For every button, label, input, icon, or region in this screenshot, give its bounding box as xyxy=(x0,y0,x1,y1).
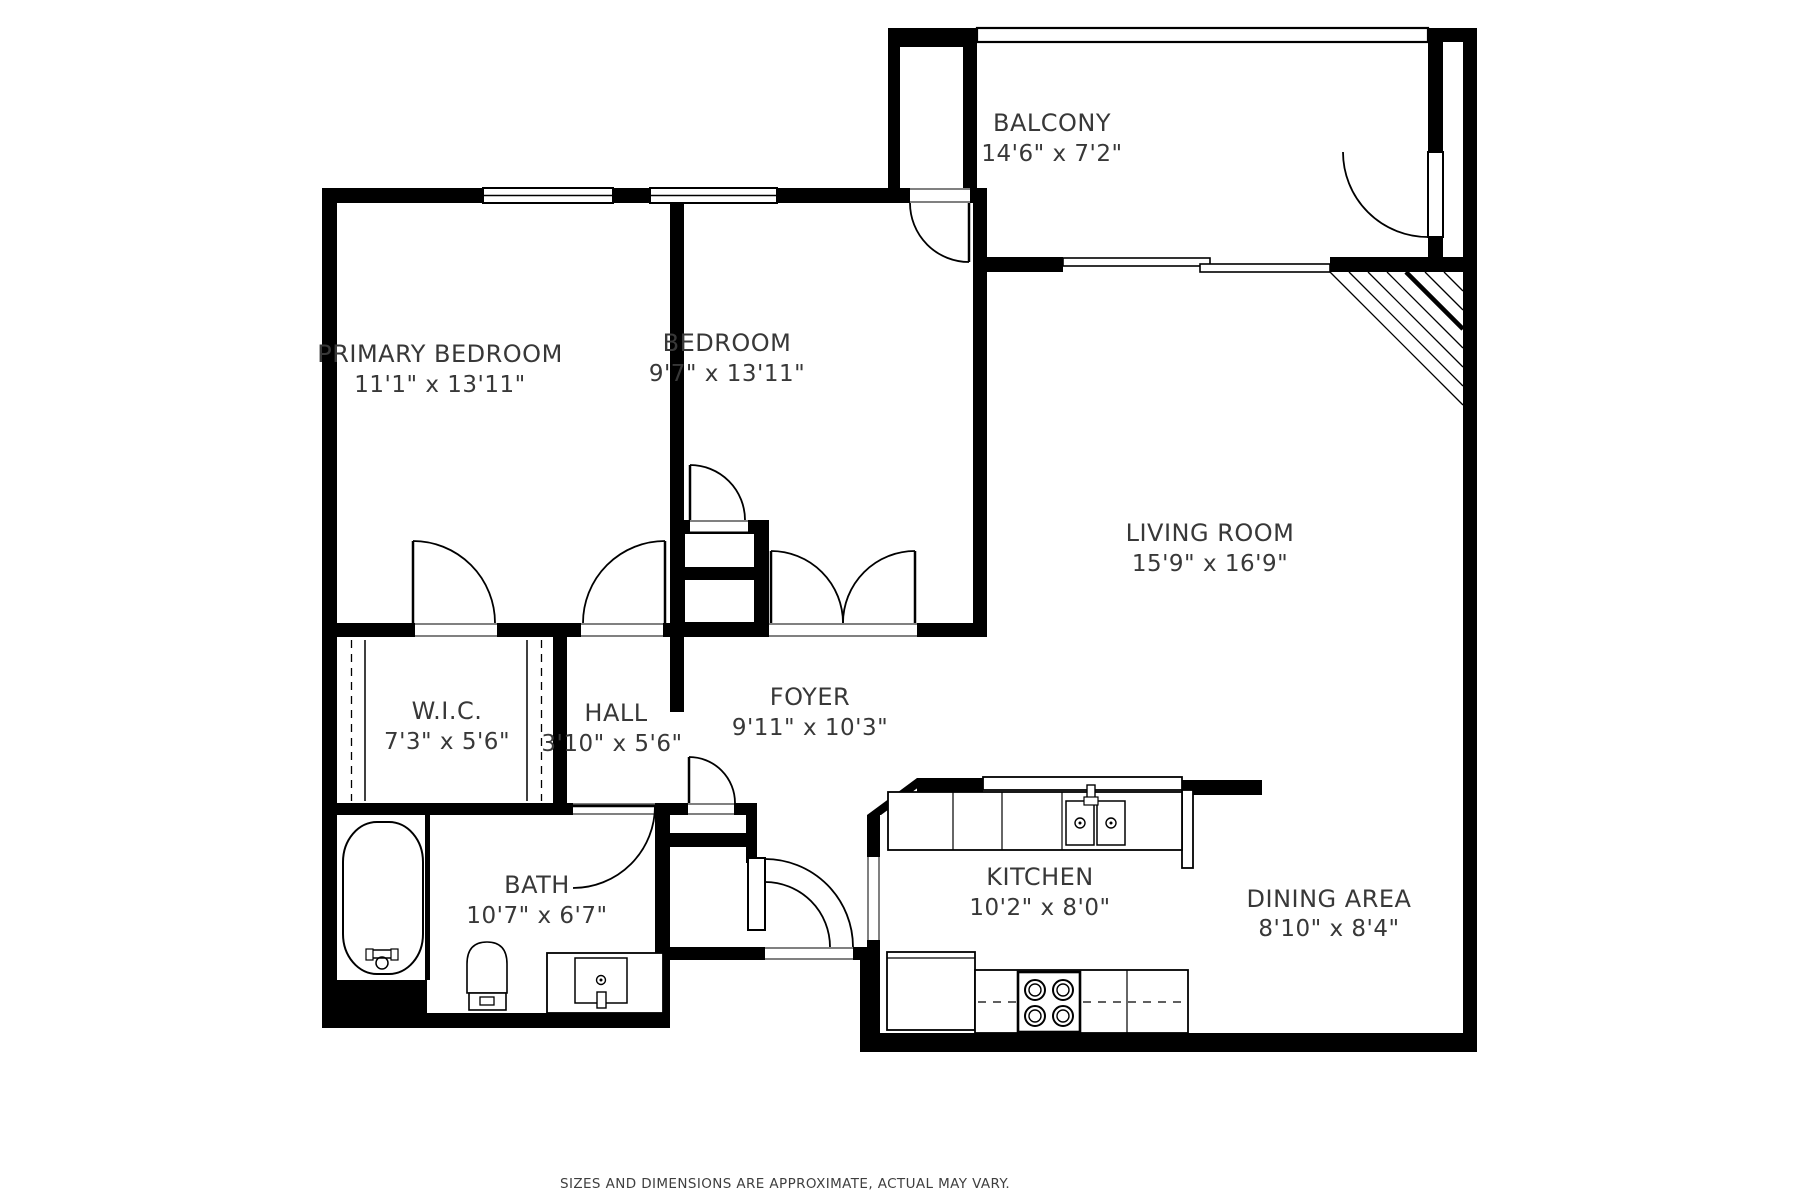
floorplan-canvas: PRIMARY BEDROOM 11'1" x 13'11" BEDROOM 9… xyxy=(0,0,1800,1200)
stove xyxy=(1018,972,1080,1032)
wall-left-outer xyxy=(322,188,337,1028)
bath-faucet xyxy=(597,992,606,1008)
label-living-room: LIVING ROOM xyxy=(1126,519,1295,547)
label-kitchen: KITCHEN xyxy=(986,863,1094,891)
wall-top-3 xyxy=(777,188,888,203)
wall-top-2 xyxy=(613,188,650,203)
wall-south-4 xyxy=(917,623,985,637)
dims-bedroom: 9'7" x 13'11" xyxy=(649,361,805,387)
dims-hall: 3'10" x 5'6" xyxy=(541,731,682,757)
wall-coatcloset-top xyxy=(657,833,750,847)
dims-bath: 10'7" x 6'7" xyxy=(466,903,607,929)
wall-balcony-lr-1 xyxy=(985,257,1063,272)
hatched-corner xyxy=(1330,272,1463,405)
wall-south-1 xyxy=(337,623,415,637)
wall-south-3 xyxy=(663,623,769,637)
wall-bath-top-1 xyxy=(322,803,573,815)
hatch-thick-line xyxy=(1406,272,1463,329)
label-balcony: BALCONY xyxy=(993,109,1111,137)
threshold-coatcloset-door xyxy=(688,803,734,815)
wall-bedroom2-east xyxy=(973,188,987,637)
dims-foyer: 9'11" x 10'3" xyxy=(732,715,888,741)
wall-top-1 xyxy=(322,188,483,203)
wall-tub-alcove xyxy=(425,815,430,980)
label-wic: W.I.C. xyxy=(412,697,483,725)
dims-wic: 7'3" x 5'6" xyxy=(384,729,510,755)
front-door xyxy=(748,858,853,947)
label-dining-area: DINING AREA xyxy=(1247,885,1412,913)
wall-balcony-stub-top xyxy=(1428,42,1443,152)
label-primary-bedroom: PRIMARY BEDROOM xyxy=(317,340,563,368)
label-bedroom: BEDROOM xyxy=(663,329,792,357)
threshold-kitchen-entry xyxy=(867,857,880,940)
dims-primary-bedroom: 11'1" x 13'11" xyxy=(354,372,525,398)
closet-box-upper xyxy=(684,533,755,568)
wall-kitchen-top-2 xyxy=(1182,780,1262,795)
threshold-bedroom-balcony-door xyxy=(910,188,970,203)
wall-coatcloset-right xyxy=(746,815,757,863)
threshold-foyer-double-door xyxy=(769,623,917,637)
bathtub xyxy=(343,822,423,974)
threshold-front-door xyxy=(765,947,853,960)
balcony-railing xyxy=(977,28,1428,42)
label-foyer: FOYER xyxy=(770,683,850,711)
wall-wic-hall xyxy=(553,637,567,803)
foyer-closet-double-door xyxy=(771,551,915,623)
wall-south-2 xyxy=(497,623,581,637)
coatcloset-door xyxy=(689,757,735,803)
wall-bath-bottom xyxy=(322,1013,670,1028)
wall-bedroom2-south-1 xyxy=(684,520,690,533)
bedroom-balcony-door xyxy=(910,203,969,262)
wall-closet-bar xyxy=(684,568,755,579)
primary-bedroom-door xyxy=(583,541,665,623)
sliding-door-living-room xyxy=(1063,258,1330,272)
wall-tub-block xyxy=(337,980,427,1015)
wall-kitchen-west-1 xyxy=(867,815,880,857)
wic-door xyxy=(413,541,495,623)
wall-bath-top-2 xyxy=(655,803,688,815)
dims-living-room: 15'9" x 16'9" xyxy=(1132,551,1288,577)
window-primary-bedroom xyxy=(483,188,613,203)
wall-entry-bottom-1 xyxy=(655,947,765,960)
wall-kitchen-top-1 xyxy=(917,778,983,792)
dims-kitchen: 10'2" x 8'0" xyxy=(969,895,1110,921)
threshold-bedroom-closet-door xyxy=(690,520,748,533)
closet-box-lower xyxy=(684,579,755,623)
toilet xyxy=(467,942,507,1010)
fridge xyxy=(887,952,975,1030)
threshold-wic-door xyxy=(415,623,497,637)
kitchen-counter-top xyxy=(888,785,1182,850)
bedroom-closet-door xyxy=(690,465,745,520)
window-bedroom xyxy=(650,188,777,203)
wall-bottom-connector xyxy=(860,947,880,1033)
disclaimer-text: SIZES AND DIMENSIONS ARE APPROXIMATE, AC… xyxy=(560,1176,1010,1192)
bath-door xyxy=(573,806,655,888)
floorplan-drawing: PRIMARY BEDROOM 11'1" x 13'11" BEDROOM 9… xyxy=(0,0,1800,1200)
balcony-end-door xyxy=(1343,152,1443,237)
kitchen-counter-bottom xyxy=(975,970,1188,1033)
dims-dining-area: 8'10" x 8'4" xyxy=(1258,916,1399,942)
dims-balcony: 14'6" x 7'2" xyxy=(981,141,1122,167)
wall-closet-east xyxy=(755,520,769,637)
wall-bottom-main xyxy=(860,1033,1477,1052)
bath-vanity xyxy=(547,953,663,1013)
wall-right-outer xyxy=(1463,28,1477,1052)
threshold-primary-door xyxy=(581,623,663,637)
shaft-interior xyxy=(900,47,963,188)
wall-balcony-lr-2 xyxy=(1330,257,1463,272)
label-hall: HALL xyxy=(584,699,647,727)
label-bath: BATH xyxy=(504,871,570,899)
wall-bath-top-3 xyxy=(734,803,757,815)
room-labels: PRIMARY BEDROOM 11'1" x 13'11" BEDROOM 9… xyxy=(317,109,1411,942)
